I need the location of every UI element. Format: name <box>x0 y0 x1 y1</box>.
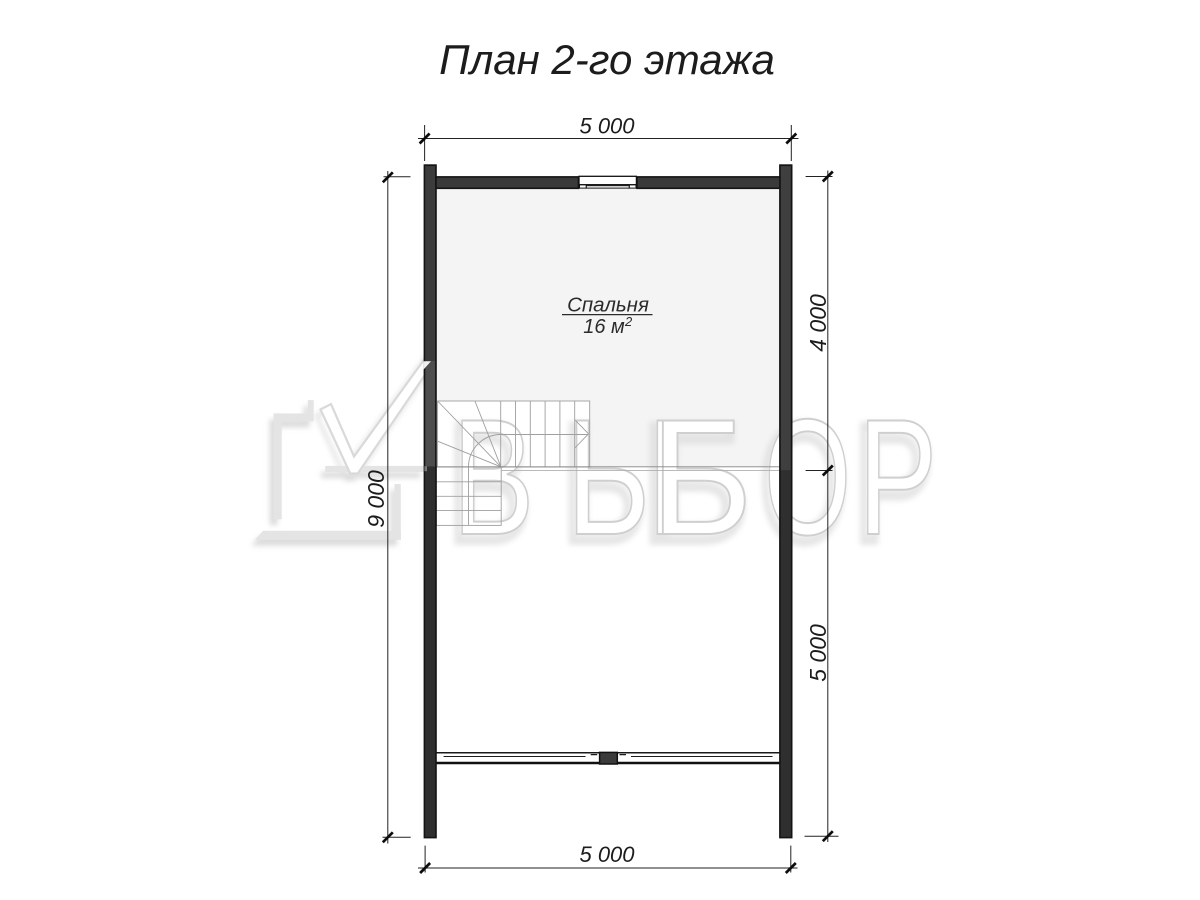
svg-text:4 000: 4 000 <box>805 294 831 352</box>
svg-text:Спальня: Спальня <box>567 294 649 317</box>
svg-text:9 000: 9 000 <box>363 470 389 528</box>
svg-text:5 000: 5 000 <box>579 114 635 139</box>
svg-text:Б: Б <box>650 385 753 570</box>
svg-text:5 000: 5 000 <box>579 842 635 867</box>
svg-text:О: О <box>764 384 851 569</box>
svg-text:Р: Р <box>858 386 937 570</box>
svg-text:5 000: 5 000 <box>805 624 831 682</box>
svg-text:2: 2 <box>624 314 633 329</box>
svg-text:План 2-го этажа: План 2-го этажа <box>439 36 775 83</box>
svg-text:В: В <box>452 385 535 569</box>
svg-text:16 м: 16 м <box>583 316 625 338</box>
